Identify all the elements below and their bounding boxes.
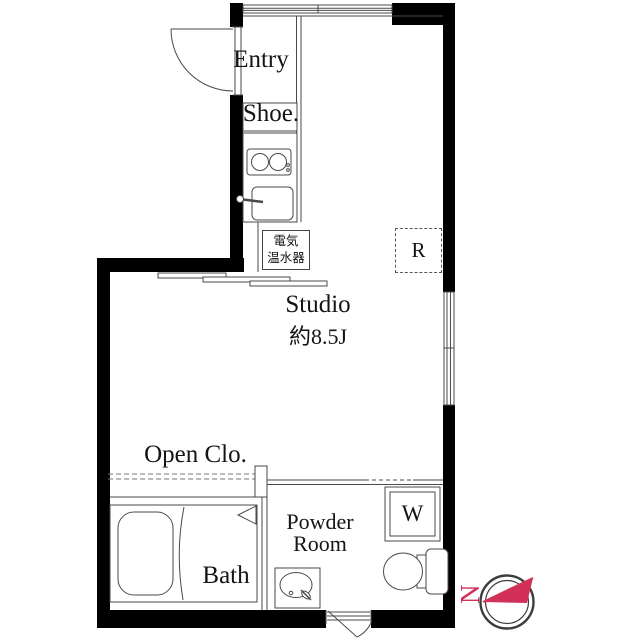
water-heater-line1: 電気 bbox=[273, 233, 298, 250]
compass-north-label: N bbox=[455, 585, 485, 605]
refrigerator-label: R bbox=[395, 228, 442, 273]
washer-letter: W bbox=[402, 501, 424, 527]
bathtub-icon bbox=[118, 512, 173, 595]
sliding-door-panels bbox=[158, 273, 327, 286]
top-window bbox=[243, 5, 392, 13]
open-closet-hanger bbox=[108, 466, 267, 497]
powder-room-line1: Powder bbox=[262, 511, 378, 533]
shoe-label: Shoe. bbox=[240, 100, 302, 128]
washbasin-icon bbox=[275, 568, 320, 608]
refrigerator-letter: R bbox=[411, 238, 425, 263]
washer-label: W bbox=[385, 487, 440, 541]
powder-room-label: Powder Room bbox=[262, 511, 378, 556]
compass-icon: N bbox=[455, 576, 534, 629]
service-door bbox=[326, 610, 371, 637]
bath-label: Bath bbox=[193, 562, 259, 590]
right-window bbox=[444, 292, 454, 405]
studio-area-label: 約8.5J bbox=[253, 319, 383, 351]
stove-icon bbox=[247, 149, 291, 175]
water-heater-line2: 温水器 bbox=[267, 250, 305, 267]
entry-label: Entry bbox=[222, 46, 300, 74]
water-heater-label: 電気 温水器 bbox=[262, 230, 310, 270]
toilet-icon bbox=[384, 549, 449, 594]
studio-label: Studio bbox=[253, 291, 383, 319]
floorplan: N Entry Shoe. 電気 温水器 R Studio 約8.5J Open… bbox=[0, 0, 640, 639]
powder-room-line2: Room bbox=[262, 533, 378, 555]
open-closet-label: Open Clo. bbox=[128, 441, 263, 469]
